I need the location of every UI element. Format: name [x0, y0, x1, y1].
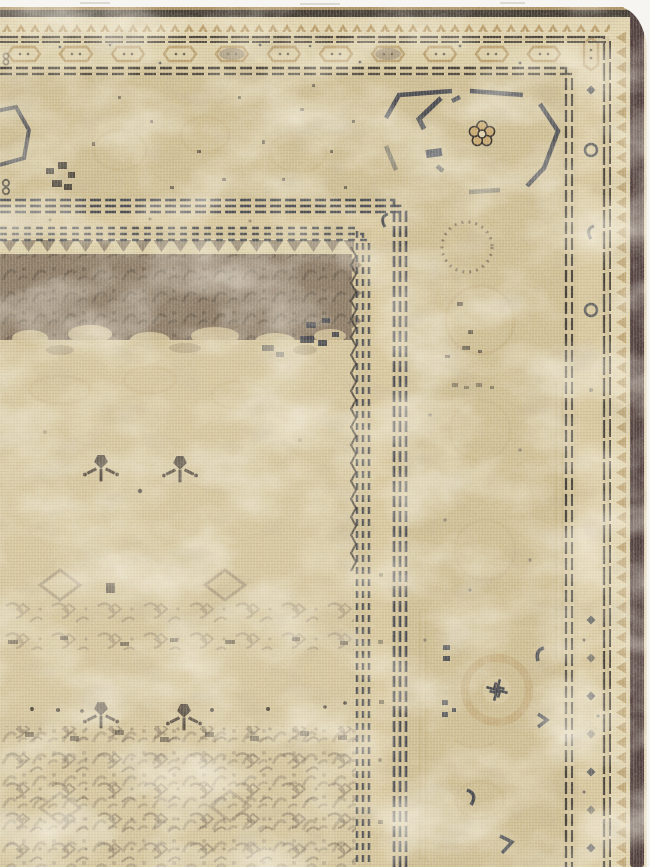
- rug-photo: [0, 0, 650, 867]
- rug-image: [0, 0, 650, 867]
- texture-overlays: [0, 7, 646, 867]
